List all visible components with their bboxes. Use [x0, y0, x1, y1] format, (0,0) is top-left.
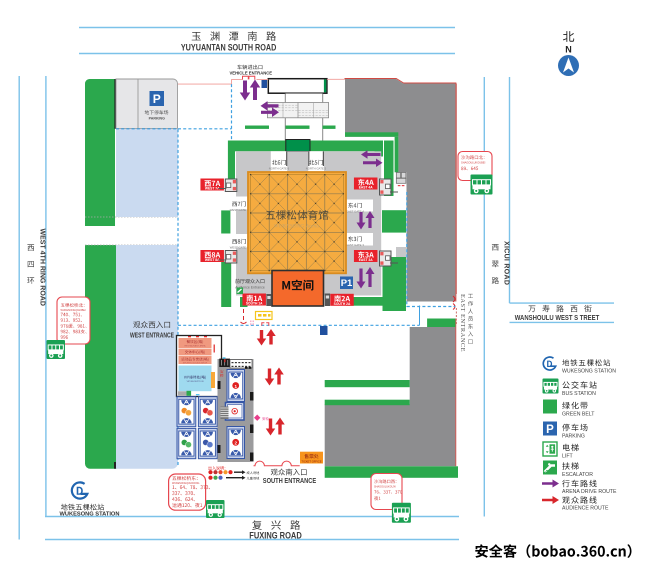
svg-text:WUKESONGQIAOBEI: WUKESONGQIAOBEI [61, 309, 86, 312]
svg-text:EAST GATE 3: EAST GATE 3 [346, 243, 364, 247]
svg-text:XICUI ROAD: XICUI ROAD [503, 241, 510, 285]
svg-text:SOUTH 2A: SOUTH 2A [334, 302, 351, 306]
svg-text:YUYUANTAN SOUTH ROAD: YUYUANTAN SOUTH ROAD [181, 43, 277, 53]
svg-text:WEST GATE 8: WEST GATE 8 [230, 246, 249, 250]
svg-text:WUKESONG STATION: WUKESONG STATION [562, 369, 616, 375]
svg-text:WUKESONGQIAODONG: WUKESONGQIAODONG [172, 482, 200, 485]
svg-text:RESTAURANT AREA: RESTAURANT AREA [184, 344, 206, 347]
svg-text:AUDIENCE ROUTE: AUDIENCE ROUTE [562, 506, 609, 512]
svg-text:GREEN BELT: GREEN BELT [562, 412, 595, 418]
svg-text:SPORTS GOODS SHOP: SPORTS GOODS SHOP [183, 363, 208, 365]
svg-text:WUKESONG STATION: WUKESONG STATION [60, 512, 120, 518]
svg-text:EAST ENTRANCE: EAST ENTRANCE [459, 294, 466, 352]
svg-text:WEST GATE 7: WEST GATE 7 [230, 208, 249, 212]
svg-text:WEST 7A: WEST 7A [205, 187, 220, 191]
svg-text:NORTH GATE 6: NORTH GATE 6 [269, 167, 290, 171]
svg-text:PARKING: PARKING [562, 434, 585, 440]
svg-text:WEST 4TH RING ROAD: WEST 4TH RING ROAD [39, 229, 46, 306]
svg-text:VIP RECEPTION: VIP RECEPTION [187, 381, 204, 383]
svg-text:WANSHOULU WEST S TREET: WANSHOULU WEST S TREET [515, 313, 600, 322]
svg-text:TICKET OFFICE: TICKET OFFICE [301, 459, 321, 463]
svg-text:ESCALATOR: ESCALATOR [562, 472, 593, 478]
svg-text:ARENA DRIVE ROUTE: ARENA DRIVE ROUTE [562, 489, 617, 495]
svg-text:SOUTH 1A: SOUTH 1A [246, 302, 263, 306]
svg-text:NORTH GATE 5: NORTH GATE 5 [306, 167, 327, 171]
svg-text:WUKESONG Arena: WUKESONG Arena [274, 224, 319, 230]
svg-text:BUS STATION: BUS STATION [562, 391, 596, 397]
svg-text:PARKING: PARKING [149, 117, 166, 121]
svg-text:EAST 4A: EAST 4A [359, 186, 374, 190]
svg-text:SOUTH ENTRANCE: SOUTH ENTRANCE [263, 476, 317, 485]
svg-text:WEST 8A: WEST 8A [205, 258, 220, 262]
svg-text:P1: P1 [341, 278, 353, 289]
svg-text:P: P [546, 424, 554, 436]
svg-text:SHAGOULUKOUXI: SHAGOULUKOUXI [374, 486, 396, 489]
svg-text:EAST 3A: EAST 3A [359, 258, 374, 262]
svg-text:WEST ENTRANCE: WEST ENTRANCE [130, 331, 174, 340]
svg-text:VEHICLE ENTRANCE: VEHICLE ENTRANCE [230, 71, 273, 76]
svg-text:LIFT: LIFT [562, 454, 573, 460]
svg-text:P: P [153, 92, 161, 106]
svg-text:FUXING ROAD: FUXING ROAD [249, 531, 302, 541]
svg-text:SHAGOULUKOUBEI: SHAGOULUKOUBEI [461, 161, 486, 165]
svg-text:N: N [565, 45, 572, 55]
